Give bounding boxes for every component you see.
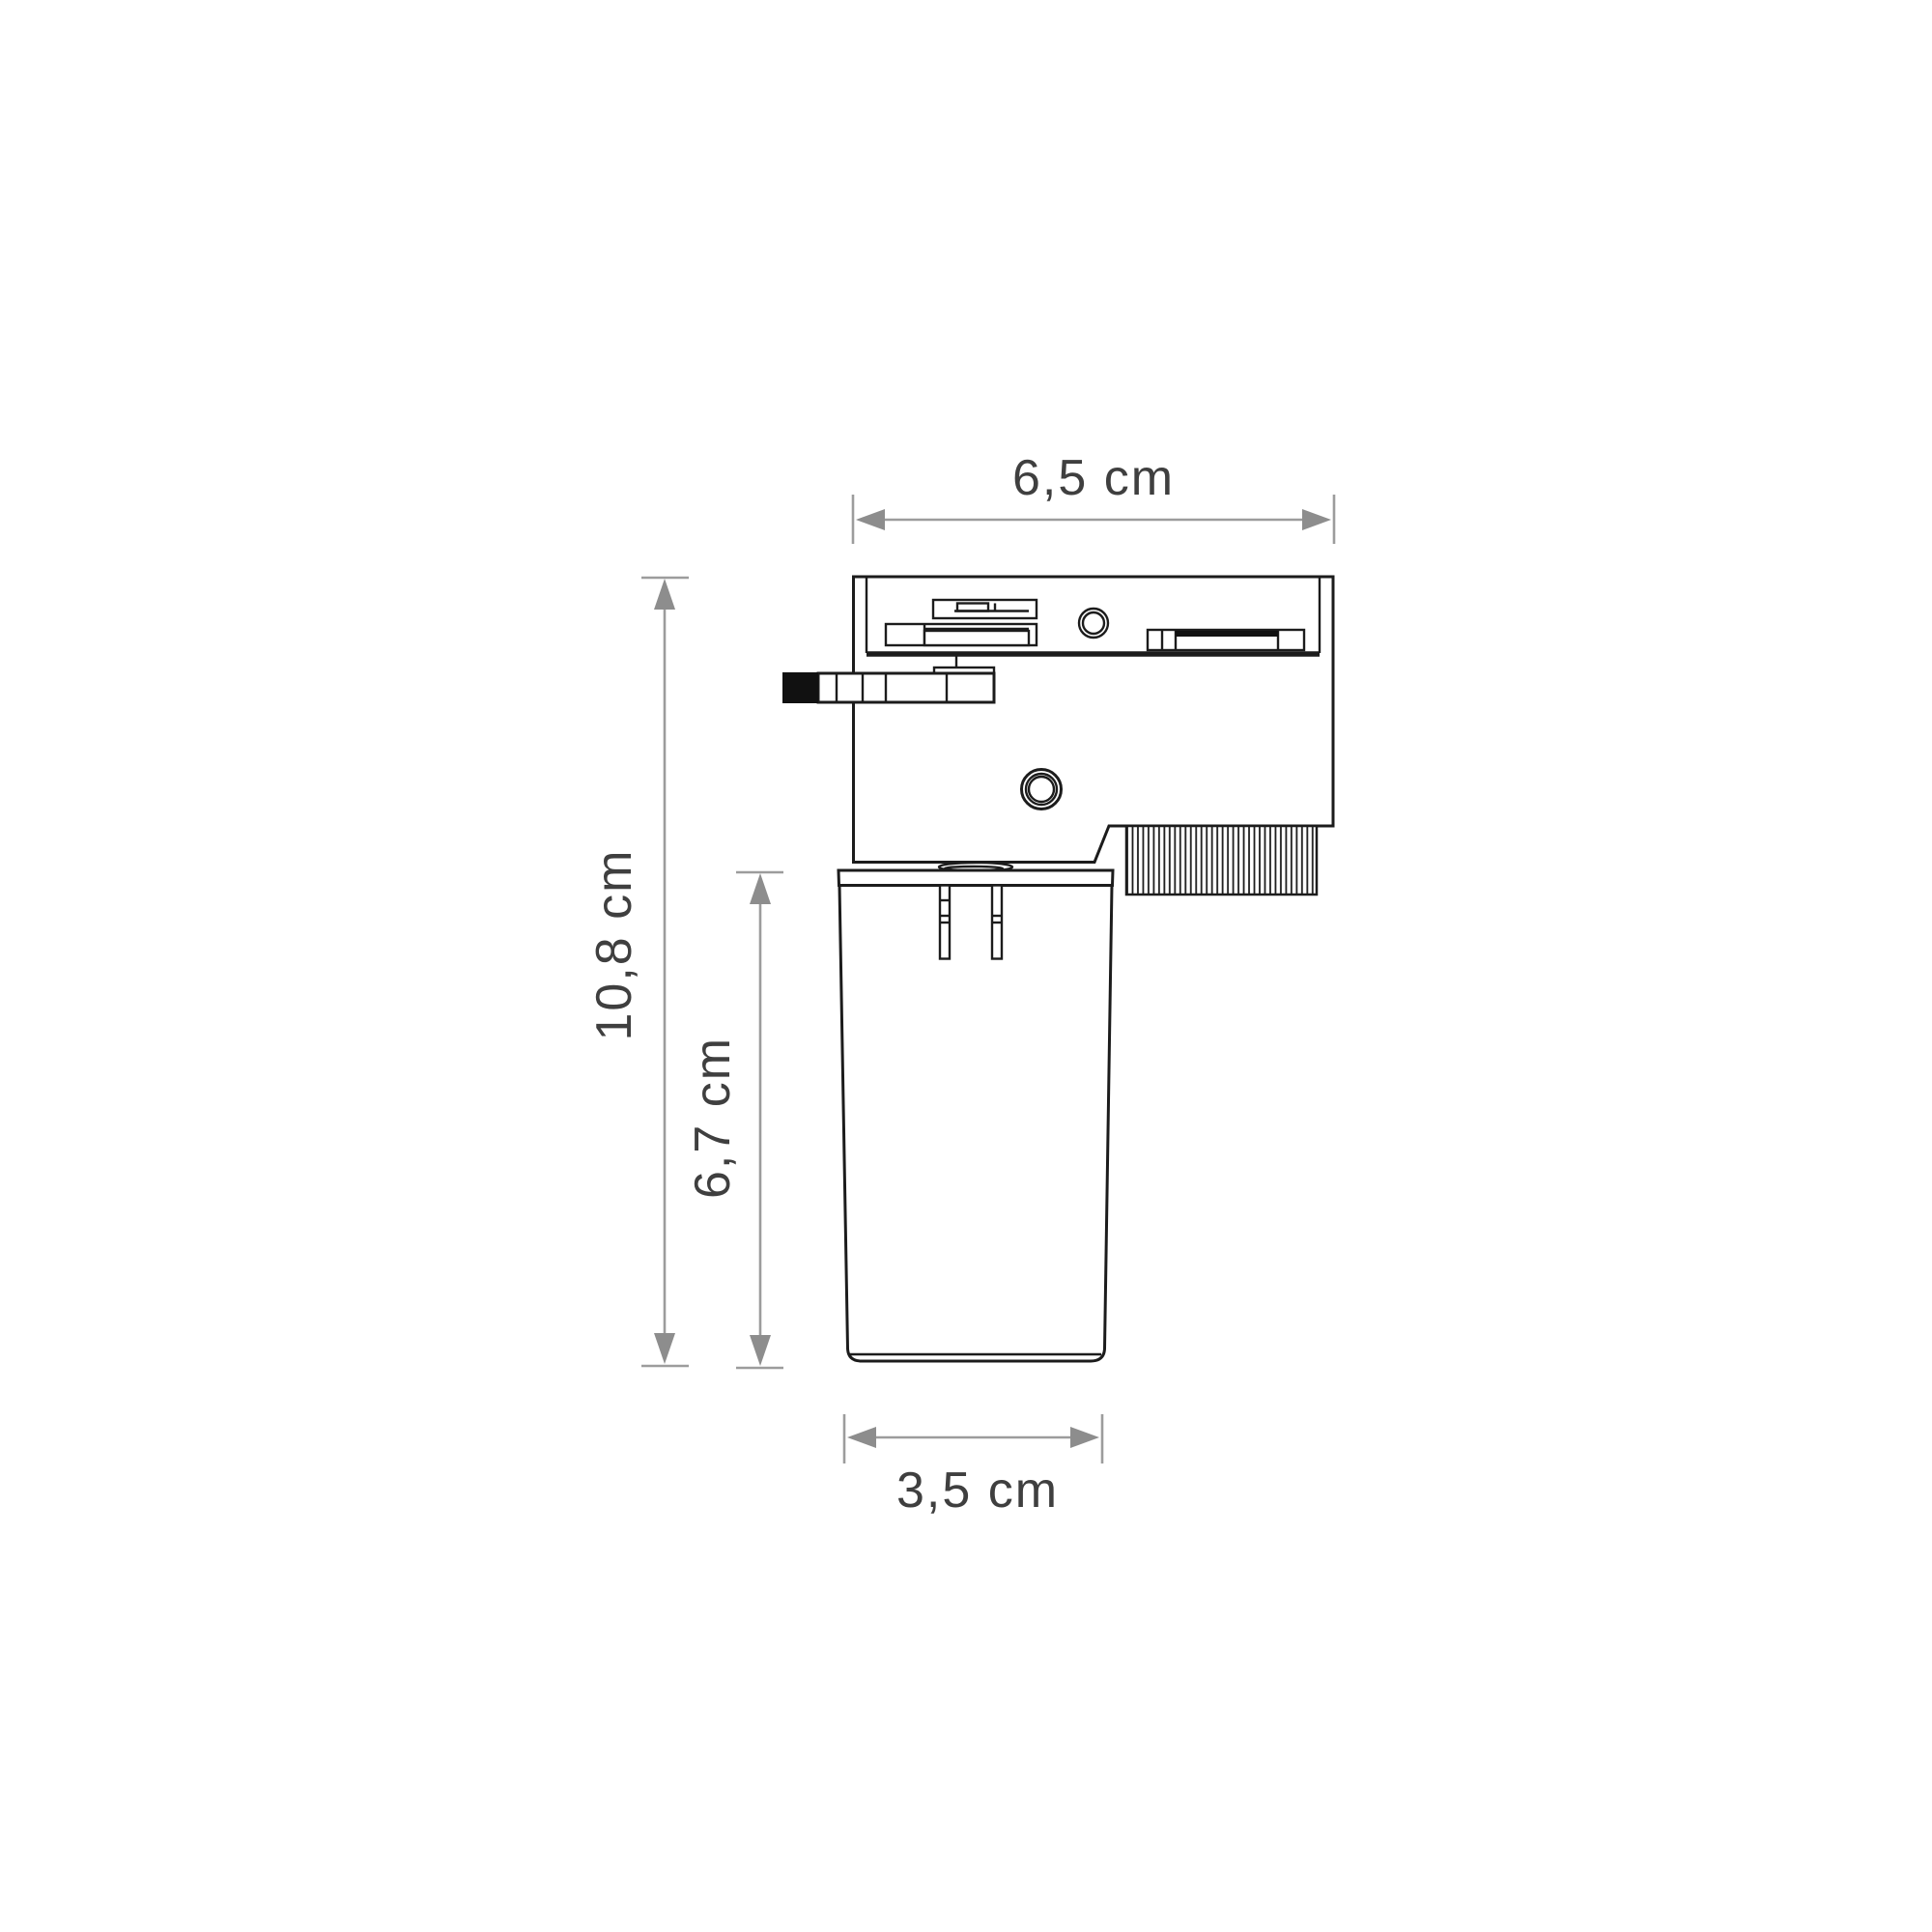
heatsink-hatch-block (1126, 826, 1317, 895)
dim-label-total-height: 10,8 cm (586, 849, 642, 1041)
dim-label-bottom-width: 3,5 cm (896, 1463, 1059, 1519)
dimension-bottom-width: 3,5 cm (844, 1414, 1102, 1519)
arrow-down-icon (654, 1333, 675, 1364)
track-adapter-diagram: 6,5 cm 10,8 cm 6,7 cm 3,5 cm (0, 0, 1932, 1932)
arrow-right-icon (1302, 509, 1331, 530)
right-slot-band (1176, 631, 1278, 637)
arrow-left-icon (856, 509, 885, 530)
cylinder-body (839, 886, 1112, 1362)
technical-drawing-canvas: 6,5 cm 10,8 cm 6,7 cm 3,5 cm (0, 0, 1932, 1932)
lever-bar (818, 673, 994, 702)
dimension-total-height: 10,8 cm (586, 578, 689, 1366)
cylinder-top-plate (838, 870, 1113, 886)
adapter-head-outline (854, 577, 1334, 863)
dimension-top-width: 6,5 cm (853, 450, 1334, 544)
arrow-left-icon (847, 1427, 876, 1448)
lamp-holder-cylinder (838, 870, 1113, 1361)
adapter-body-silhouette (854, 577, 1334, 863)
dim-label-top-width: 6,5 cm (1012, 450, 1175, 506)
lower-slot-inner (924, 631, 1029, 645)
arrow-down-icon (750, 1335, 771, 1366)
lever-black-knob (782, 672, 818, 703)
arrow-right-icon (1070, 1427, 1099, 1448)
dimension-lamp-height: 6,7 cm (685, 872, 783, 1368)
dim-label-lamp-height: 6,7 cm (685, 1037, 741, 1199)
arrow-up-icon (750, 873, 771, 904)
arrow-up-icon (654, 579, 675, 610)
